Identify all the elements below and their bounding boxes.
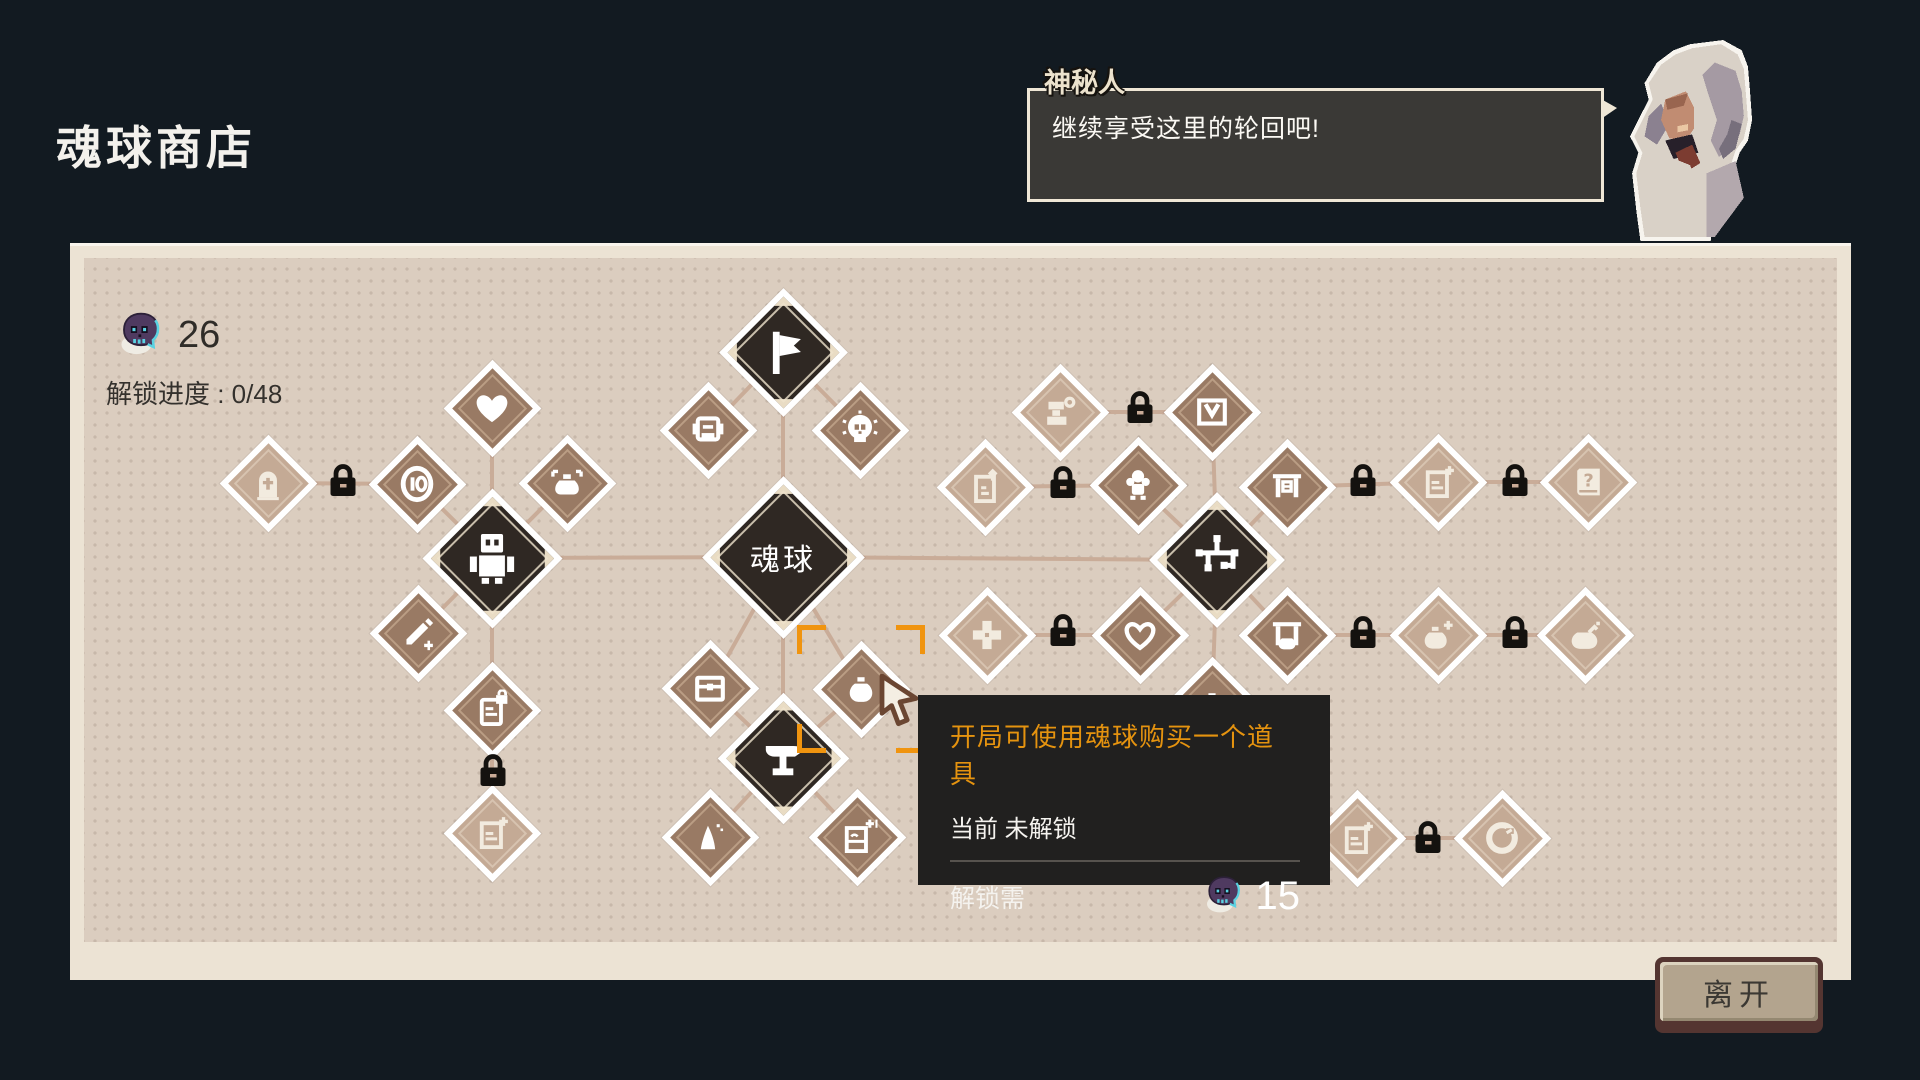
- cursor-icon: [876, 674, 924, 730]
- leave-button[interactable]: 离开: [1655, 957, 1823, 1033]
- pouch-arrows-icon: [547, 463, 588, 504]
- kettle-spark-icon: [1565, 615, 1606, 656]
- card-lock-icon: [472, 690, 513, 731]
- lock-icon: [1343, 615, 1383, 656]
- node-robot-head[interactable]: [659, 381, 757, 479]
- node-tombstone[interactable]: [219, 434, 317, 532]
- lock-icon: [1043, 465, 1083, 506]
- book-question-icon: ?: [1568, 462, 1609, 503]
- lock-icon: [1495, 463, 1535, 504]
- leave-button-label: 离开: [1703, 970, 1775, 1014]
- circuit-icon: [1189, 532, 1246, 589]
- banner-box-icon: [1267, 467, 1308, 508]
- flag-icon: [756, 325, 810, 379]
- node-coin-ten[interactable]: [368, 435, 466, 533]
- npc-dialog-text: 继续享受这里的轮回吧!: [1052, 109, 1320, 145]
- coin-ring-icon: [1482, 818, 1523, 859]
- npc-name: 神秘人: [1044, 61, 1125, 100]
- banner-pouch-icon: [1267, 615, 1308, 656]
- tooltip-divider: [950, 860, 1300, 862]
- node-banner-box[interactable]: [1238, 438, 1336, 536]
- mystery-person-portrait: [1628, 38, 1810, 243]
- node-card-arrow-up[interactable]: [936, 438, 1034, 536]
- node-tooltip: 开局可使用魂球购买一个道具 当前 未解锁 解锁需 15: [918, 695, 1330, 885]
- heart-outline-icon: [1120, 615, 1161, 656]
- node-candle[interactable]: [661, 788, 759, 886]
- unlock-progress-label: 解锁进度 : 0/48: [106, 374, 282, 411]
- soul-skull-icon: [1204, 874, 1244, 919]
- node-soul-orb[interactable]: 魂球: [702, 476, 864, 638]
- card-arrow-up-icon: [965, 467, 1006, 508]
- tooltip-unlock-label: 解锁需: [950, 879, 1204, 915]
- doll-icon: [1118, 465, 1159, 506]
- node-pouch-arrows[interactable]: [518, 434, 616, 532]
- soul-orb-balance: 26: [118, 310, 220, 361]
- potion-sparkle-icon: [1418, 615, 1459, 656]
- node-chest[interactable]: [661, 639, 759, 737]
- node-plus-cross[interactable]: [938, 586, 1036, 684]
- page-title: 魂球商店: [56, 112, 256, 178]
- node-card-plus-one[interactable]: [808, 788, 906, 886]
- box-v-icon: [1192, 392, 1233, 433]
- tombstone-icon: [248, 463, 289, 504]
- robot-icon: [463, 529, 522, 588]
- card-sparkle-icon: [472, 813, 513, 854]
- card-sparkle-icon: [1337, 818, 1378, 859]
- lock-icon: [473, 753, 513, 794]
- plus-cross-icon: [967, 615, 1008, 656]
- lock-icon: [323, 463, 363, 504]
- card-plus-one-icon: [837, 817, 878, 858]
- lock-icon: [1495, 615, 1535, 656]
- node-potion-sparkle[interactable]: [1389, 586, 1487, 684]
- press-gear-icon: [1040, 392, 1081, 433]
- node-card-sparkle[interactable]: [1389, 433, 1487, 531]
- tooltip-title: 开局可使用魂球购买一个道具: [950, 717, 1300, 791]
- coin-ten-icon: [397, 464, 438, 505]
- node-kettle[interactable]: [1536, 586, 1634, 684]
- tooltip-cost: 15: [1256, 874, 1301, 919]
- node-card-faded[interactable]: [443, 784, 541, 882]
- robot-head-icon: [688, 410, 729, 451]
- card-sparkle-icon: [1418, 462, 1459, 503]
- node-book-question[interactable]: ?: [1539, 433, 1637, 531]
- pencil-plus-icon: [398, 613, 439, 654]
- lock-icon: [1408, 820, 1448, 861]
- lock-icon: [1120, 390, 1160, 431]
- node-skull-badge[interactable]: [811, 381, 909, 479]
- node-label: 魂球: [750, 535, 816, 579]
- heart-icon: [472, 388, 513, 429]
- chest-icon: [690, 668, 731, 709]
- soul-skull-icon: [118, 310, 164, 361]
- svg-text:?: ?: [1583, 471, 1593, 492]
- candle-icon: [690, 817, 731, 858]
- lock-icon: [1043, 613, 1083, 654]
- skull-badge-icon: [840, 410, 881, 451]
- node-card-lock[interactable]: [443, 661, 541, 759]
- lock-icon: [1343, 463, 1383, 504]
- tooltip-status: 当前 未解锁: [950, 809, 1300, 844]
- dialog-pointer: [1601, 99, 1617, 119]
- soul-orb-count: 26: [178, 314, 220, 357]
- npc-dialog-box: 神秘人 继续享受这里的轮回吧!: [1027, 88, 1604, 202]
- node-coin-ring[interactable]: [1453, 789, 1551, 887]
